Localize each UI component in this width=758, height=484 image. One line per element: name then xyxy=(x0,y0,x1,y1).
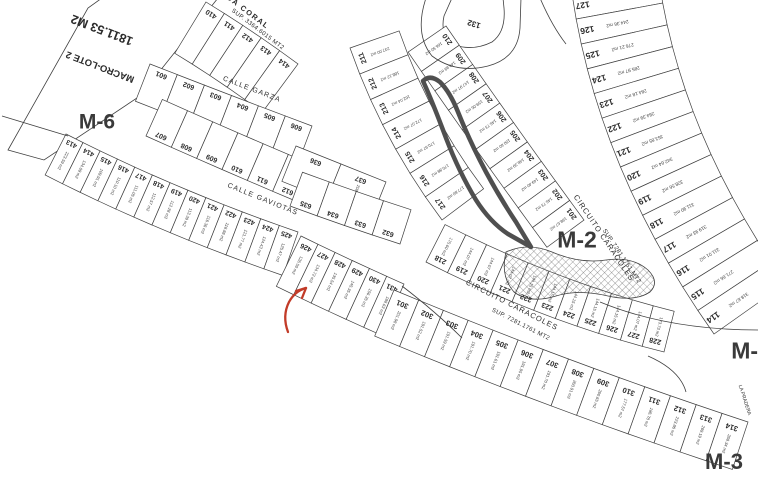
block-label-m1: M-1 xyxy=(731,337,758,363)
block-label-m3: M-3 xyxy=(705,449,743,474)
boundary-line-1 xyxy=(540,0,566,44)
map-svg: 4104114124134146016026036046056066076086… xyxy=(0,0,758,484)
block-label-m2: M-2 xyxy=(557,226,597,252)
street-label-la-pradera: LA PRADERA xyxy=(737,384,753,416)
plat-map: 4104114124134146016026036046056066076086… xyxy=(0,0,758,484)
red-annotation-arrow xyxy=(285,288,306,332)
block-label-m6: M-6 xyxy=(79,111,115,134)
lot-number: 127 xyxy=(575,0,591,12)
boundary-line-5 xyxy=(648,356,686,392)
